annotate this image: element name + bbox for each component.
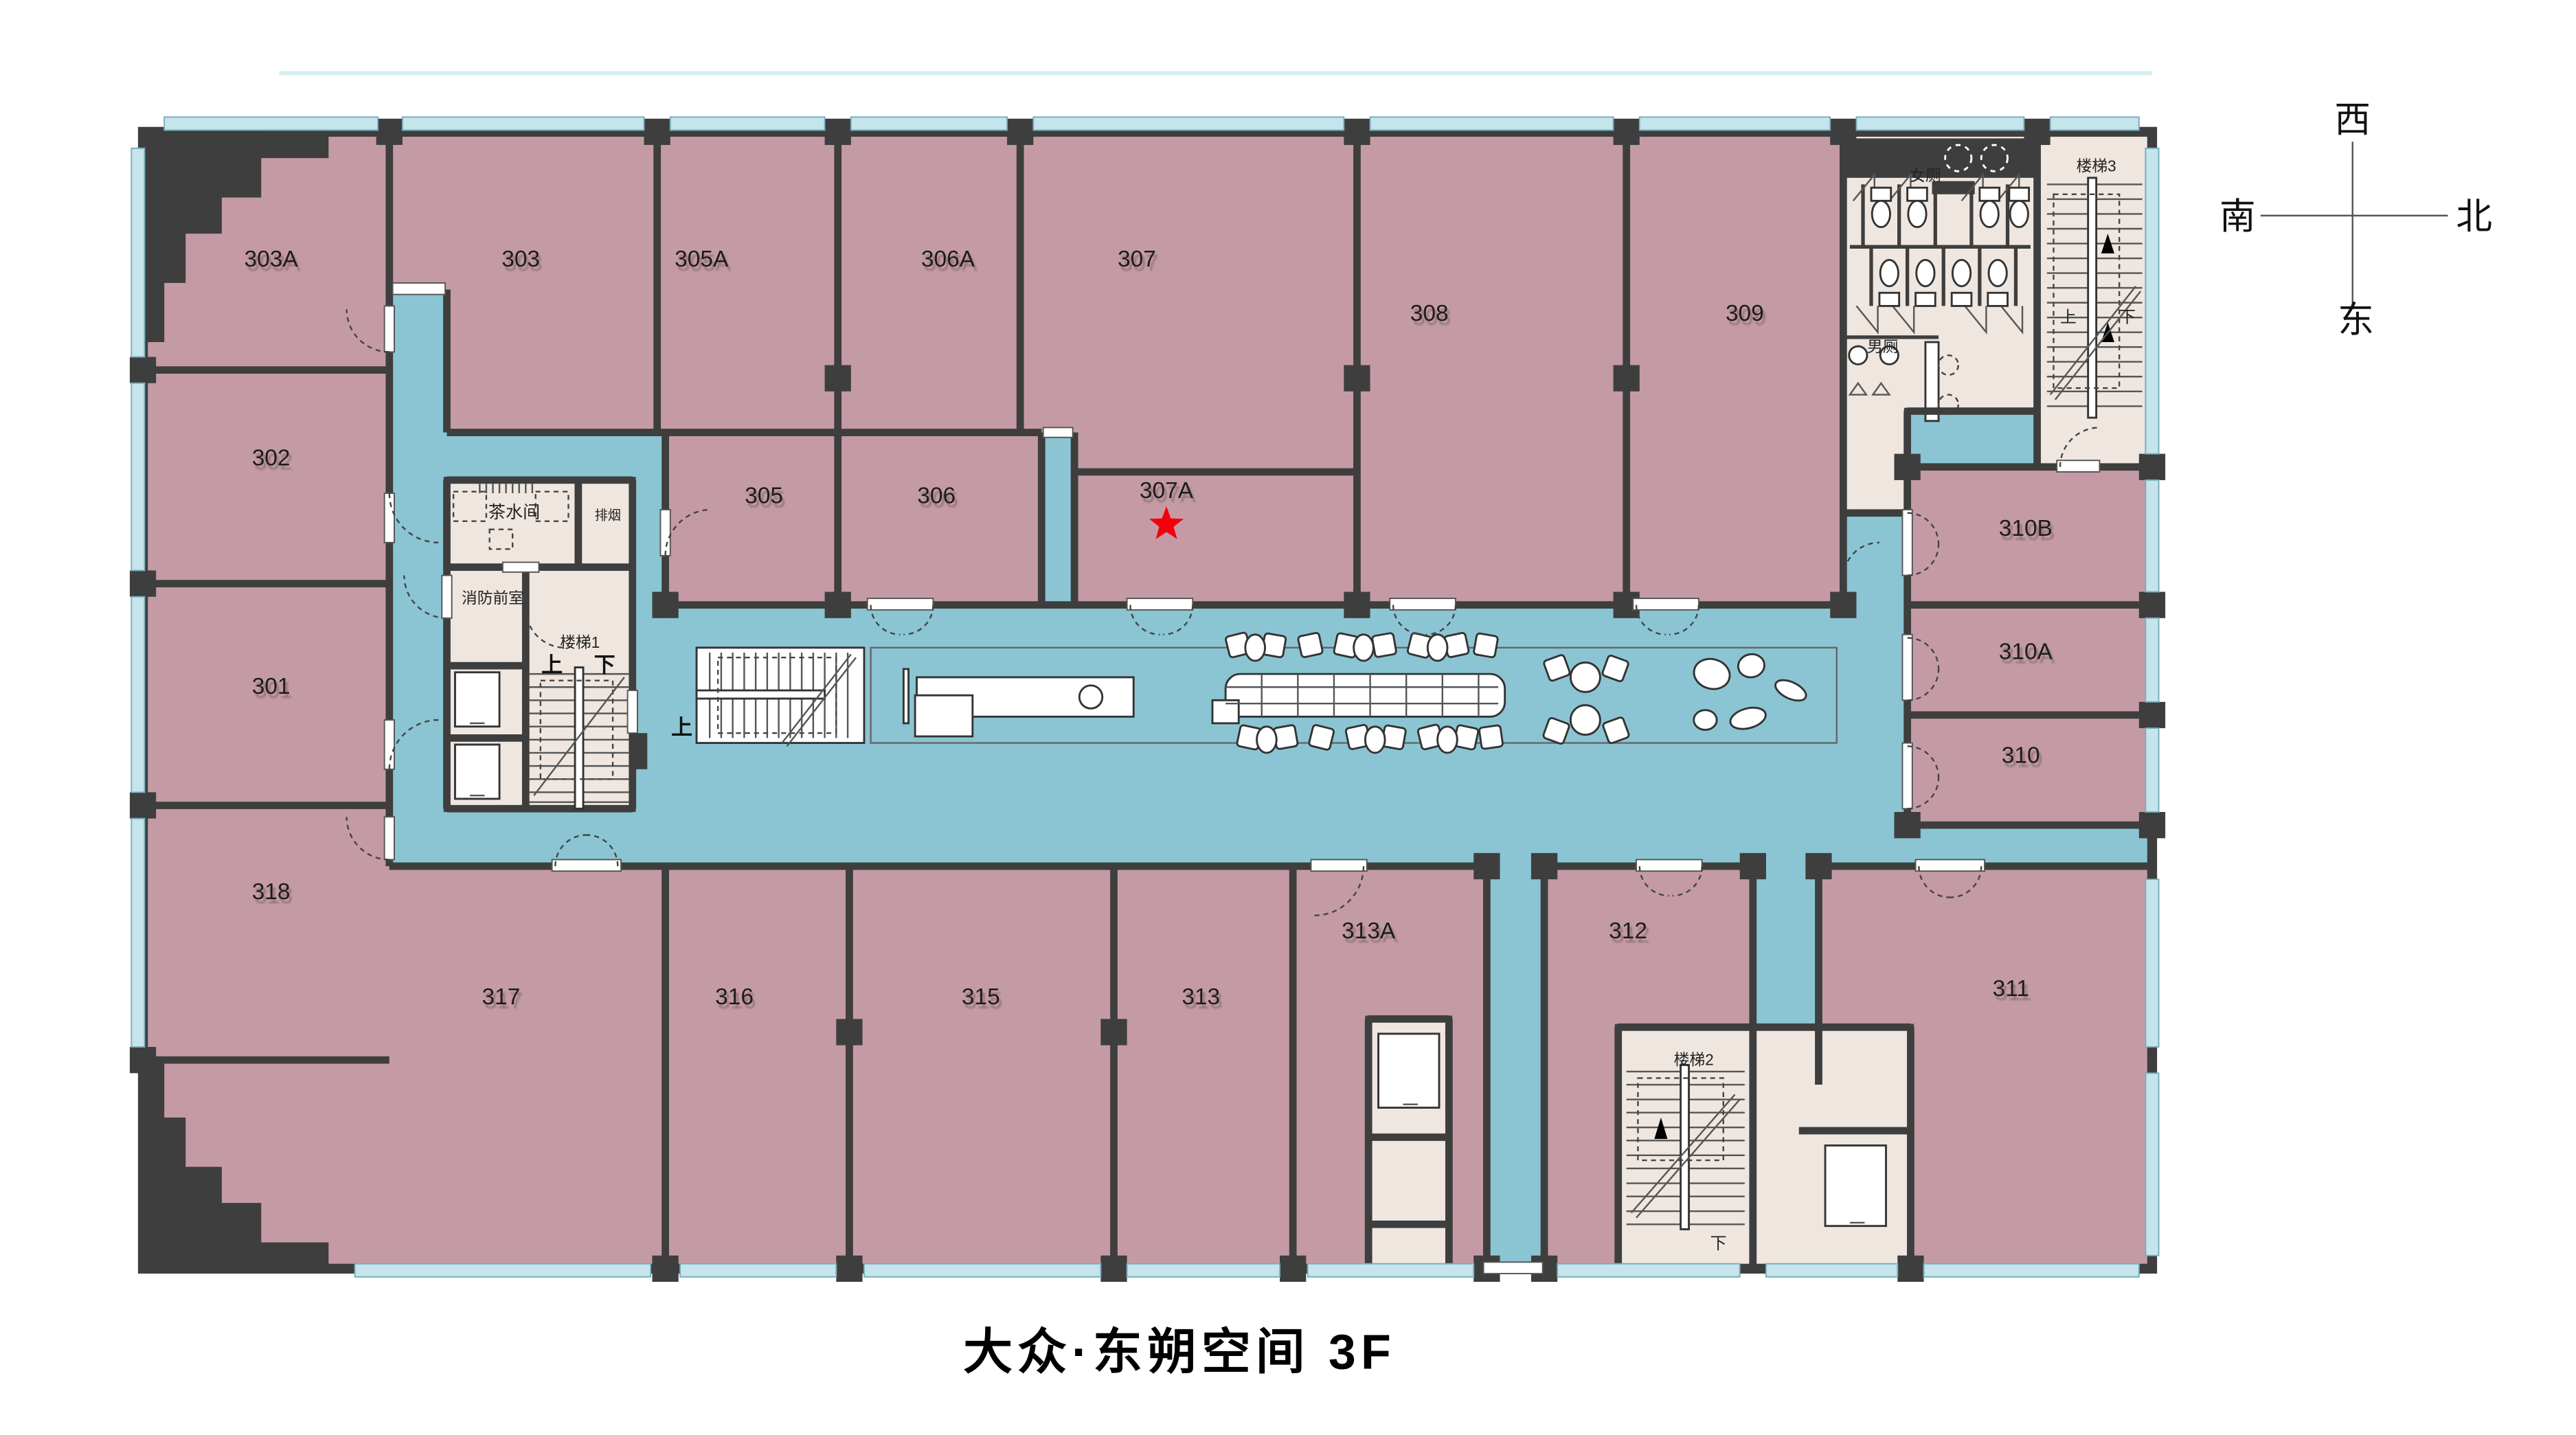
corridor-south-channel — [1487, 866, 1544, 1265]
tea-door-gap — [503, 562, 539, 572]
compass-north: 北 — [2456, 197, 2492, 237]
floor-plan-svg: 303A 303 305A 306A 307 308 309 302 305 3… — [0, 0, 2576, 1435]
top-offset-line — [280, 71, 2152, 75]
stairs3-rail — [2088, 178, 2097, 418]
room-label-303A: 303A — [245, 247, 299, 272]
room-label-306: 306 — [917, 483, 956, 508]
room-label-313A: 313A — [1342, 918, 1396, 944]
room-label-302: 302 — [252, 445, 291, 471]
reception-screen — [903, 669, 908, 723]
compass-east: 东 — [2338, 301, 2374, 341]
compass: 西 南 北 东 — [2219, 100, 2492, 341]
room-label-312: 312 — [1609, 918, 1647, 944]
elevator-2 — [455, 745, 499, 799]
compass-south: 南 — [2219, 197, 2256, 237]
corridor-right-strip — [1843, 513, 1907, 605]
stairs1-up-label: 上 — [541, 653, 563, 677]
stairs2-down-label: 下 — [1710, 1234, 1727, 1253]
meeting-table — [1225, 674, 1505, 716]
utility-interior — [1379, 1034, 1439, 1108]
stairs3-up-label: 上 — [2060, 308, 2077, 326]
smoke-exhaust-label: 排烟 — [595, 508, 621, 523]
stairs3-label: 楼梯3 — [2077, 157, 2116, 174]
stairs1-rail — [575, 668, 583, 809]
room-label-315: 315 — [962, 984, 1000, 1010]
stairs3-down-label: 下 — [2119, 308, 2136, 326]
room-label-307A: 307A — [1140, 478, 1194, 504]
reception-return — [915, 695, 973, 736]
compass-west: 西 — [2334, 100, 2371, 140]
room-label-311: 311 — [1993, 976, 2029, 1002]
elevator-1 — [455, 673, 499, 727]
stairs2-label: 楼梯2 — [1674, 1050, 1714, 1068]
room-label-309: 309 — [1726, 301, 1764, 326]
stairs1-label: 楼梯1 — [560, 633, 600, 651]
room-label-310A: 310A — [1999, 640, 2053, 665]
mens-toilet-label: 男厕 — [1867, 337, 1898, 355]
south-exit-door — [1484, 1262, 1543, 1274]
room-label-313: 313 — [1182, 984, 1220, 1010]
elevator-313A — [1379, 1034, 1439, 1108]
fire-anteroom-label: 消防前室 — [462, 589, 524, 607]
tea-room-label: 茶水间 — [488, 503, 540, 522]
escalator-rail — [697, 690, 825, 699]
wall-stub — [633, 733, 648, 769]
room-label-310: 310 — [2002, 743, 2040, 768]
corridor-mid-channel — [1041, 433, 1074, 605]
room-label-310B: 310B — [1999, 516, 2053, 541]
room-label-318: 318 — [252, 879, 291, 905]
room-label-305: 305 — [745, 483, 783, 508]
sink-icon — [1849, 346, 1867, 364]
stairs1-opening — [628, 690, 637, 733]
corridor-stair2-channel — [1753, 866, 1819, 1027]
corridor-top-door — [393, 283, 446, 295]
room-label-301: 301 — [252, 674, 291, 699]
stairs1-down-label: 下 — [594, 653, 615, 677]
room-label-316: 316 — [715, 984, 754, 1010]
room-label-303: 303 — [501, 247, 540, 272]
stairs2-rail — [1681, 1065, 1689, 1229]
room-label-308: 308 — [1410, 301, 1449, 326]
room-label-317: 317 — [482, 984, 521, 1010]
plan-title: 大众·东朔空间 3F — [963, 1325, 1396, 1380]
escalator-up-label: 上 — [671, 716, 692, 740]
room-label-305A: 305A — [675, 247, 729, 272]
room-label-306A: 306A — [921, 247, 975, 272]
floor-plan-page: 303A 303 305A 306A 307 308 309 302 305 3… — [0, 0, 2576, 1435]
elevator-se — [1825, 1146, 1886, 1226]
womens-toilet-label: 女厕 — [1910, 167, 1941, 185]
reception-chair — [1079, 686, 1102, 708]
room-label-307: 307 — [1118, 247, 1156, 272]
